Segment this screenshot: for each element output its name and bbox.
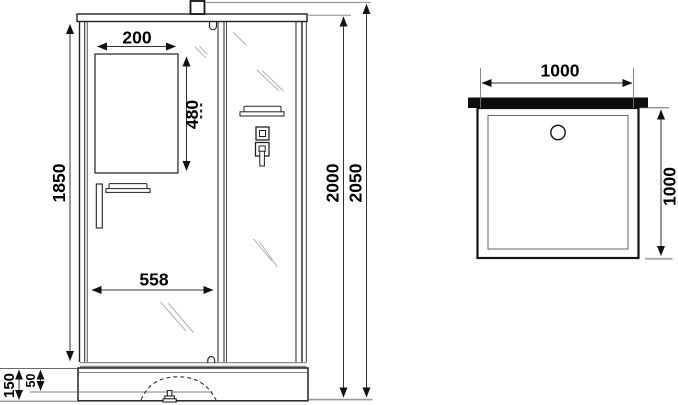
right-shelf	[240, 106, 284, 116]
dim-label-overall-height: 2050	[346, 163, 366, 202]
dim-label-tray-rim: 50	[24, 374, 38, 388]
top-view: 1000 1000	[468, 61, 678, 259]
bottom-glass-frame	[80, 363, 307, 367]
drain-circle	[551, 125, 565, 139]
dim-label-cabin-height: 2000	[323, 163, 343, 202]
cabin-roof	[77, 14, 307, 22]
back-wall-bar	[468, 98, 648, 109]
dim-label-mirror-width: 200	[122, 28, 151, 48]
dim-label-mirror-height: 480	[182, 100, 202, 129]
door-roller-top	[210, 22, 217, 30]
dim-label-tray-height: 150	[1, 373, 18, 398]
technical-drawing-canvas: 200 480 1850 558 2000 2050 150 50	[0, 0, 678, 405]
door-panel-divider	[218, 22, 227, 363]
left-wall-profile	[80, 22, 88, 363]
door-handle	[96, 184, 102, 228]
front-view	[30, 1, 308, 402]
front-view-dimensions: 200 480 1850 558 2000 2050 150 50	[0, 3, 373, 402]
mirror	[95, 54, 178, 173]
dim-label-topview-width: 1000	[541, 61, 580, 81]
dim-label-door-width: 558	[139, 270, 168, 290]
glass-reflections	[161, 32, 284, 333]
control-panel	[256, 127, 269, 140]
dim-label-topview-depth: 1000	[660, 167, 678, 206]
dim-label-door-opening-height: 1850	[49, 163, 69, 202]
roof-vent-box	[191, 1, 205, 14]
right-wall-profile	[296, 22, 306, 363]
mixer-diverter	[256, 143, 270, 167]
left-shelf	[106, 184, 150, 193]
shower-cabin-drawing: 200 480 1850 558 2000 2050 150 50	[0, 0, 678, 405]
